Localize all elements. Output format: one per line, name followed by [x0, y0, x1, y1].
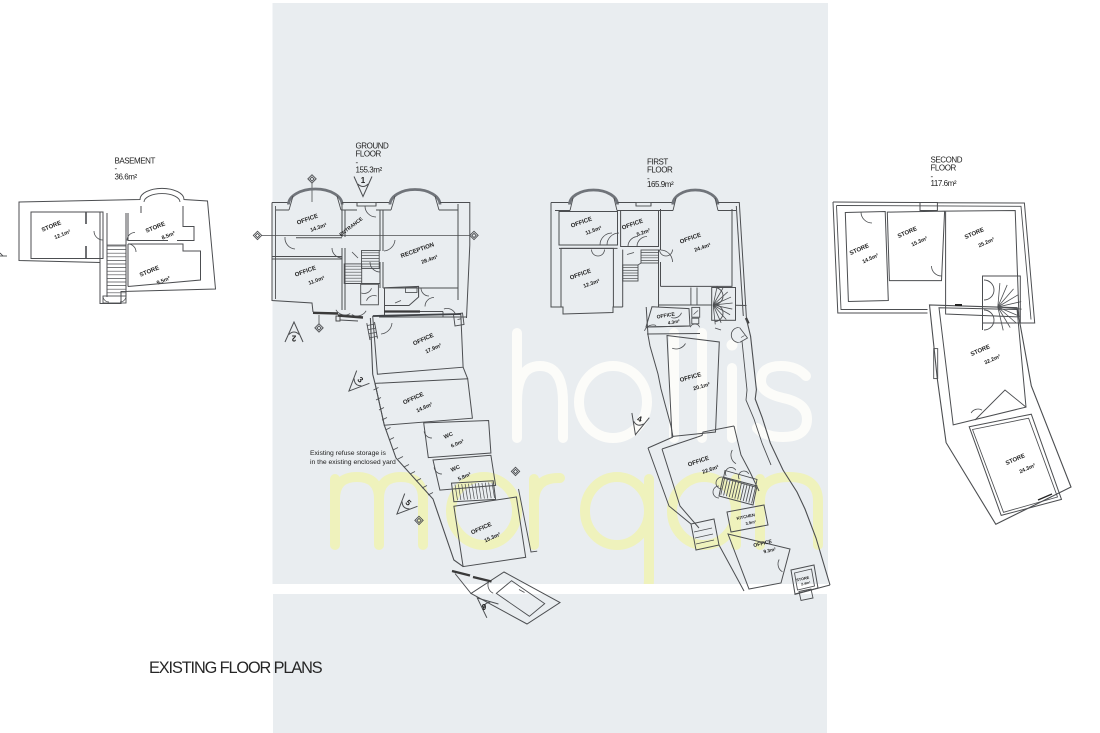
svg-text:36.6m²: 36.6m²: [115, 173, 138, 182]
svg-text:1: 1: [361, 176, 366, 185]
svg-text:FLOOR: FLOOR: [647, 166, 673, 175]
svg-text:FLOOR: FLOOR: [356, 150, 382, 159]
svg-text:165.9m²: 165.9m²: [647, 180, 674, 189]
svg-text:in the existing enclosed yard: in the existing enclosed yard: [310, 459, 396, 466]
svg-text:155.3m²: 155.3m²: [356, 166, 383, 175]
svg-text:BASEMENT: BASEMENT: [115, 157, 156, 166]
svg-text:2: 2: [291, 334, 296, 343]
svg-text:EXISTING FLOOR PLANS: EXISTING FLOOR PLANS: [149, 659, 323, 677]
svg-text:Existing refuse storage is: Existing refuse storage is: [310, 450, 387, 457]
svg-text:9: 9: [482, 603, 487, 612]
svg-text:117.6m²: 117.6m²: [931, 179, 957, 188]
svg-text:FLOOR: FLOOR: [931, 164, 957, 173]
